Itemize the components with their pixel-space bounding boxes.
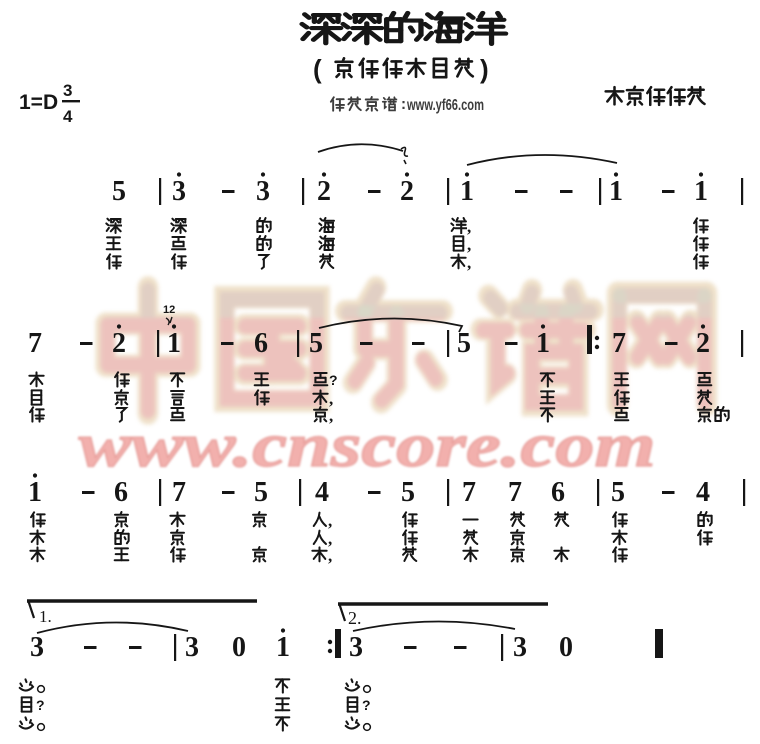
svg-text:?: ? xyxy=(329,372,338,388)
svg-text:5: 5 xyxy=(457,328,471,359)
svg-text:3: 3 xyxy=(185,632,199,663)
svg-text:6: 6 xyxy=(114,477,128,508)
svg-text:,: , xyxy=(467,235,471,254)
svg-text:?: ? xyxy=(362,697,371,713)
svg-text:3: 3 xyxy=(63,81,72,100)
svg-text:4: 4 xyxy=(63,107,73,126)
svg-text:3: 3 xyxy=(30,632,44,663)
svg-text:5: 5 xyxy=(309,328,323,359)
svg-text:2: 2 xyxy=(317,176,331,207)
svg-text:,: , xyxy=(328,546,332,565)
svg-text:,: , xyxy=(467,253,471,272)
svg-text:6: 6 xyxy=(254,328,268,359)
svg-text:7: 7 xyxy=(172,477,186,508)
svg-text:6: 6 xyxy=(551,477,565,508)
svg-text:1: 1 xyxy=(167,328,181,359)
svg-text:1: 1 xyxy=(28,477,42,508)
svg-text:5: 5 xyxy=(401,477,415,508)
svg-text:1: 1 xyxy=(609,176,623,207)
svg-text:1.: 1. xyxy=(39,607,52,626)
svg-text:12: 12 xyxy=(163,304,175,316)
svg-text:,: , xyxy=(329,406,333,425)
svg-text:2: 2 xyxy=(112,328,126,359)
svg-text:2: 2 xyxy=(400,176,414,207)
svg-text:www.cnscore.com: www.cnscore.com xyxy=(79,412,656,480)
svg-text:7: 7 xyxy=(462,477,476,508)
svg-text:?: ? xyxy=(36,697,45,713)
svg-text:0: 0 xyxy=(232,632,246,663)
svg-text:5: 5 xyxy=(254,477,268,508)
svg-text:www.yf66.com: www.yf66.com xyxy=(406,97,484,114)
svg-text:4: 4 xyxy=(696,477,710,508)
svg-text:3: 3 xyxy=(256,176,270,207)
svg-text:7: 7 xyxy=(508,477,522,508)
svg-text:1: 1 xyxy=(460,176,474,207)
svg-text:7: 7 xyxy=(612,328,626,359)
svg-text:1: 1 xyxy=(276,632,290,663)
svg-text:3: 3 xyxy=(349,632,363,663)
svg-text:1: 1 xyxy=(694,176,708,207)
svg-text:3: 3 xyxy=(513,632,527,663)
svg-text:2.: 2. xyxy=(348,608,362,628)
svg-text:5: 5 xyxy=(112,176,126,207)
svg-text:7: 7 xyxy=(28,328,42,359)
svg-text:0: 0 xyxy=(559,632,573,663)
svg-text:(: ( xyxy=(313,54,322,84)
svg-text:4: 4 xyxy=(315,477,329,508)
svg-text:): ) xyxy=(480,54,489,84)
svg-text:,: , xyxy=(328,511,332,530)
svg-text:5: 5 xyxy=(611,477,625,508)
svg-text:1: 1 xyxy=(536,328,550,359)
svg-text:3: 3 xyxy=(172,176,186,207)
svg-text:1=D: 1=D xyxy=(19,91,58,114)
svg-text:,: , xyxy=(467,217,471,236)
svg-text:2: 2 xyxy=(696,328,710,359)
